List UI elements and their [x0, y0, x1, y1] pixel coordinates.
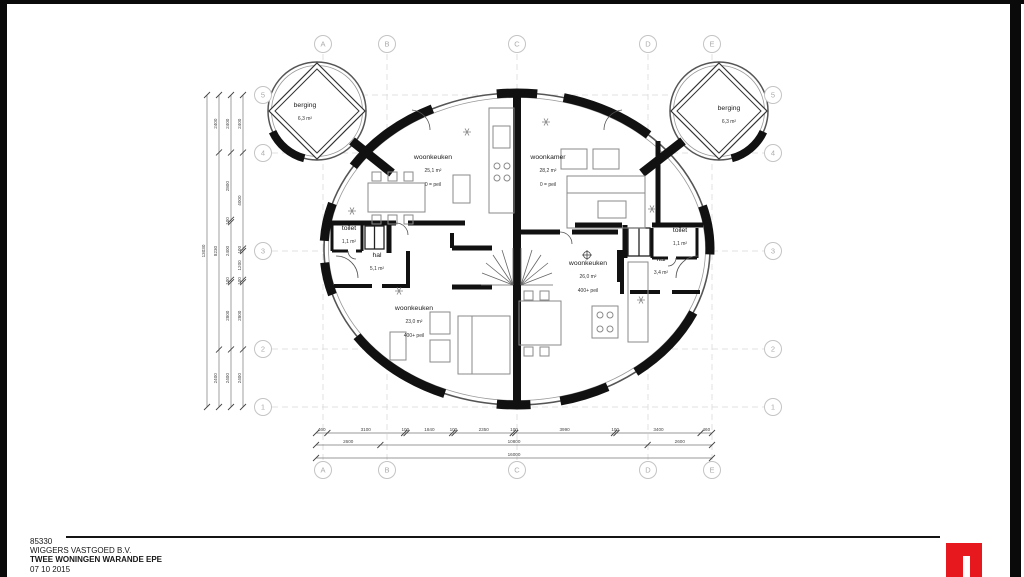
grid-bubble-label: B	[384, 40, 389, 49]
dim-label: 3990	[559, 427, 570, 432]
title-block-rule	[66, 536, 940, 538]
dim-label: 2600	[675, 439, 686, 444]
dim-label: 10800	[508, 439, 521, 444]
room-peil: 0 = peil	[540, 182, 556, 188]
grid-bubble-label: E	[709, 466, 714, 475]
drawing-sheet: 1303024008230240024002800100240010028002…	[0, 0, 1024, 577]
room-name: woonkamer	[529, 154, 566, 161]
building-geometry	[268, 62, 768, 405]
room-area: 25,1 m²	[425, 168, 442, 174]
room-area: 1,1 m²	[342, 239, 357, 245]
grid-bubble-label: 1	[771, 403, 775, 412]
dim-label: 2400	[237, 373, 242, 384]
room-name: woonkeuken	[568, 260, 607, 267]
room-area: 28,2 m²	[540, 168, 557, 174]
dim-label: 16000	[508, 452, 521, 457]
room-area: 6,3 m²	[722, 119, 737, 125]
room-name: toilet	[673, 227, 687, 234]
grid-bubble-label: D	[645, 466, 651, 475]
room-name: hal	[372, 252, 382, 259]
grid-bubble-label: C	[514, 40, 520, 49]
room-area: 5,1 m²	[370, 266, 385, 272]
grid-bubble-label: 1	[261, 403, 265, 412]
grid-bubble-label: 4	[771, 149, 775, 158]
dim-label: 4000	[237, 195, 242, 206]
company-logo	[946, 543, 982, 577]
dim-label: 1200	[237, 260, 242, 271]
right-border-bar	[1010, 0, 1021, 577]
room-area: 3,4 m²	[654, 270, 669, 276]
room-area: 1,1 m²	[673, 241, 688, 247]
grid-bubble-label: 3	[261, 247, 265, 256]
grid-bubble-label: A	[320, 466, 325, 475]
room-area: 6,3 m²	[298, 116, 313, 122]
room-name: hal	[656, 256, 666, 263]
dim-label: 8230	[213, 245, 218, 256]
dim-label: 2400	[213, 118, 218, 129]
dim-label: 2800	[225, 181, 230, 192]
dim-label: 460	[702, 427, 710, 432]
grid-bubble-label: 2	[771, 345, 775, 354]
dim-label: 2800	[237, 310, 242, 321]
grid-bubble-label: 3	[771, 247, 775, 256]
dim-label: 3400	[653, 427, 664, 432]
grid-bubble-label: 5	[771, 91, 775, 100]
room-peil: 400+ peil	[578, 288, 598, 294]
drawing-date: 07 10 2015	[30, 565, 70, 574]
room-name: woonkeuken	[394, 305, 433, 312]
dim-label: 2400	[225, 245, 230, 256]
room-peil: 400+ peil	[404, 333, 424, 339]
grid-bubble-label: E	[709, 40, 714, 49]
room-peil: 0 = peil	[425, 182, 441, 188]
grid-bubble-label: C	[514, 466, 520, 475]
rim-wall-segment	[497, 93, 537, 94]
dim-label: 1840	[424, 427, 435, 432]
grid-bubble-label: 5	[261, 91, 265, 100]
room-area: 23,0 m²	[406, 319, 423, 325]
grid-bubble-label: 2	[261, 345, 265, 354]
room-name: woonkeuken	[413, 154, 452, 161]
top-border-bar	[0, 0, 1024, 4]
dim-label: 2350	[479, 427, 490, 432]
dim-label: 2800	[225, 310, 230, 321]
grid-bubble-label: D	[645, 40, 651, 49]
dim-label: 2600	[343, 439, 354, 444]
dim-label: 2400	[213, 373, 218, 384]
dim-label: 2400	[225, 373, 230, 384]
room-name: toilet	[342, 225, 356, 232]
project-title: TWEE WONINGEN WARANDE EPE	[30, 555, 162, 564]
grid-bubble-label: A	[320, 40, 325, 49]
logo-notch	[963, 556, 970, 577]
floor-plan-drawing: 1303024008230240024002800100240010028002…	[0, 0, 1024, 577]
room-name: berging	[718, 105, 741, 112]
dim-label: 460	[318, 427, 326, 432]
room-name: berging	[294, 102, 317, 109]
grid-bubble-label: 4	[261, 149, 265, 158]
project-number: 85330	[30, 537, 52, 546]
grid-bubble-label: B	[384, 466, 389, 475]
dim-label: 2400	[225, 118, 230, 129]
dim-label: 3100	[361, 427, 372, 432]
dim-label: 13030	[201, 244, 206, 257]
client-name: WIGGERS VASTGOED B.V.	[30, 546, 131, 555]
dim-label: 2400	[237, 118, 242, 129]
left-border-bar	[0, 0, 7, 577]
room-area: 26,0 m²	[580, 274, 597, 280]
rim-wall-segment	[497, 404, 531, 405]
